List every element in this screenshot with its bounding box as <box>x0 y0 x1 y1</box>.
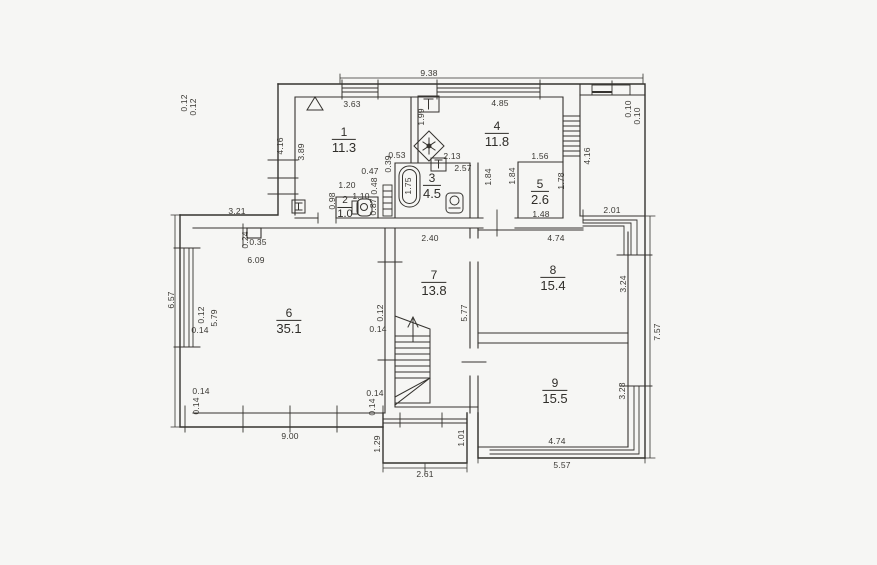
room-number: 9 <box>542 377 567 391</box>
room-area: 2.6 <box>531 191 549 206</box>
dimension-label: 1.78 <box>557 172 566 189</box>
room-label-3: 34.5 <box>423 172 441 200</box>
dimension-label: 0.12 <box>189 98 198 115</box>
dimension-label: 4.74 <box>548 437 565 446</box>
dimension-label: 1.20 <box>338 181 355 190</box>
dimension-label: 1.48 <box>532 210 549 219</box>
room-number: 4 <box>485 120 509 134</box>
dimension-label: 2.61 <box>416 470 433 479</box>
room-area: 15.5 <box>542 390 567 405</box>
dimension-label: 4.16 <box>583 147 592 164</box>
room-label-9: 915.5 <box>542 377 567 405</box>
dimension-label: 0.39 <box>384 155 393 172</box>
room-area: 15.4 <box>540 277 565 292</box>
room-number: 6 <box>276 307 301 321</box>
dimension-label: 6.57 <box>167 291 176 308</box>
dimension-label: 7.57 <box>653 323 662 340</box>
dimension-label: 9.38 <box>420 69 437 78</box>
room-number: 8 <box>540 264 565 278</box>
room-area: 4.5 <box>423 185 441 200</box>
room-area: 1.0 <box>337 207 352 220</box>
labels-layer: 9.380.120.123.634.850.100.101.994.163.89… <box>0 0 877 565</box>
room-number: 3 <box>423 172 441 186</box>
dimension-label: 1.29 <box>373 435 382 452</box>
dimension-label: 5.77 <box>460 304 469 321</box>
dimension-label: 0.14 <box>192 397 201 414</box>
room-label-1: 111.3 <box>332 126 356 154</box>
dimension-label: 2.01 <box>603 206 620 215</box>
room-area: 13.8 <box>421 282 446 297</box>
room-number: 5 <box>531 178 549 192</box>
dimension-label: 0.98 <box>328 192 337 209</box>
dimension-label: 1.99 <box>417 108 426 125</box>
room-label-6: 635.1 <box>276 307 301 335</box>
room-number: 2 <box>337 196 352 208</box>
room-area: 11.8 <box>485 133 509 148</box>
room-number: 7 <box>421 269 446 283</box>
room-label-7: 713.8 <box>421 269 446 297</box>
room-label-2: 21.0 <box>337 196 352 220</box>
dimension-label: 2.57 <box>454 164 471 173</box>
dimension-label: 9.00 <box>281 432 298 441</box>
dimension-label: 3.24 <box>619 275 628 292</box>
dimension-label: 1.01 <box>457 429 466 446</box>
dimension-label: 1.84 <box>508 167 517 184</box>
room-area: 35.1 <box>276 320 301 335</box>
dimension-label: 5.57 <box>553 461 570 470</box>
dimension-label: 4.85 <box>491 99 508 108</box>
dimension-label: 0.10 <box>633 107 642 124</box>
dimension-label: 0.12 <box>376 304 385 321</box>
dimension-label: 0.35 <box>249 238 266 247</box>
dimension-label: 3.89 <box>297 143 306 160</box>
dimension-label: 4.74 <box>547 234 564 243</box>
room-label-8: 815.4 <box>540 264 565 292</box>
dimension-label: 6.09 <box>247 256 264 265</box>
dimension-label: 2.40 <box>421 234 438 243</box>
dimension-label: 1.56 <box>531 152 548 161</box>
dimension-label: 0.14 <box>191 326 208 335</box>
dimension-label: 0.14 <box>368 398 377 415</box>
dimension-label: 0.14 <box>369 325 386 334</box>
dimension-label: 0.12 <box>197 306 206 323</box>
room-number: 1 <box>332 126 356 140</box>
room-area: 11.3 <box>332 139 356 154</box>
dimension-label: 0.14 <box>366 389 383 398</box>
dimension-label: 0.24 <box>241 231 250 248</box>
dimension-label: 0.87 <box>369 198 378 215</box>
dimension-label: 4.16 <box>276 137 285 154</box>
dimension-label: 0.14 <box>192 387 209 396</box>
dimension-label: 0.47 <box>361 167 378 176</box>
dimension-label: 0.48 <box>370 177 379 194</box>
dimension-label: 2.13 <box>443 152 460 161</box>
dimension-label: 3.28 <box>618 382 627 399</box>
dimension-label: 3.63 <box>343 100 360 109</box>
dimension-label: 3.21 <box>228 207 245 216</box>
dimension-label: 1.75 <box>404 177 413 194</box>
room-label-4: 411.8 <box>485 120 509 148</box>
floor-plan-page: 9.380.120.123.634.850.100.101.994.163.89… <box>0 0 877 565</box>
dimension-label: 5.79 <box>210 309 219 326</box>
room-label-5: 52.6 <box>531 178 549 206</box>
dimension-label: 1.84 <box>484 168 493 185</box>
